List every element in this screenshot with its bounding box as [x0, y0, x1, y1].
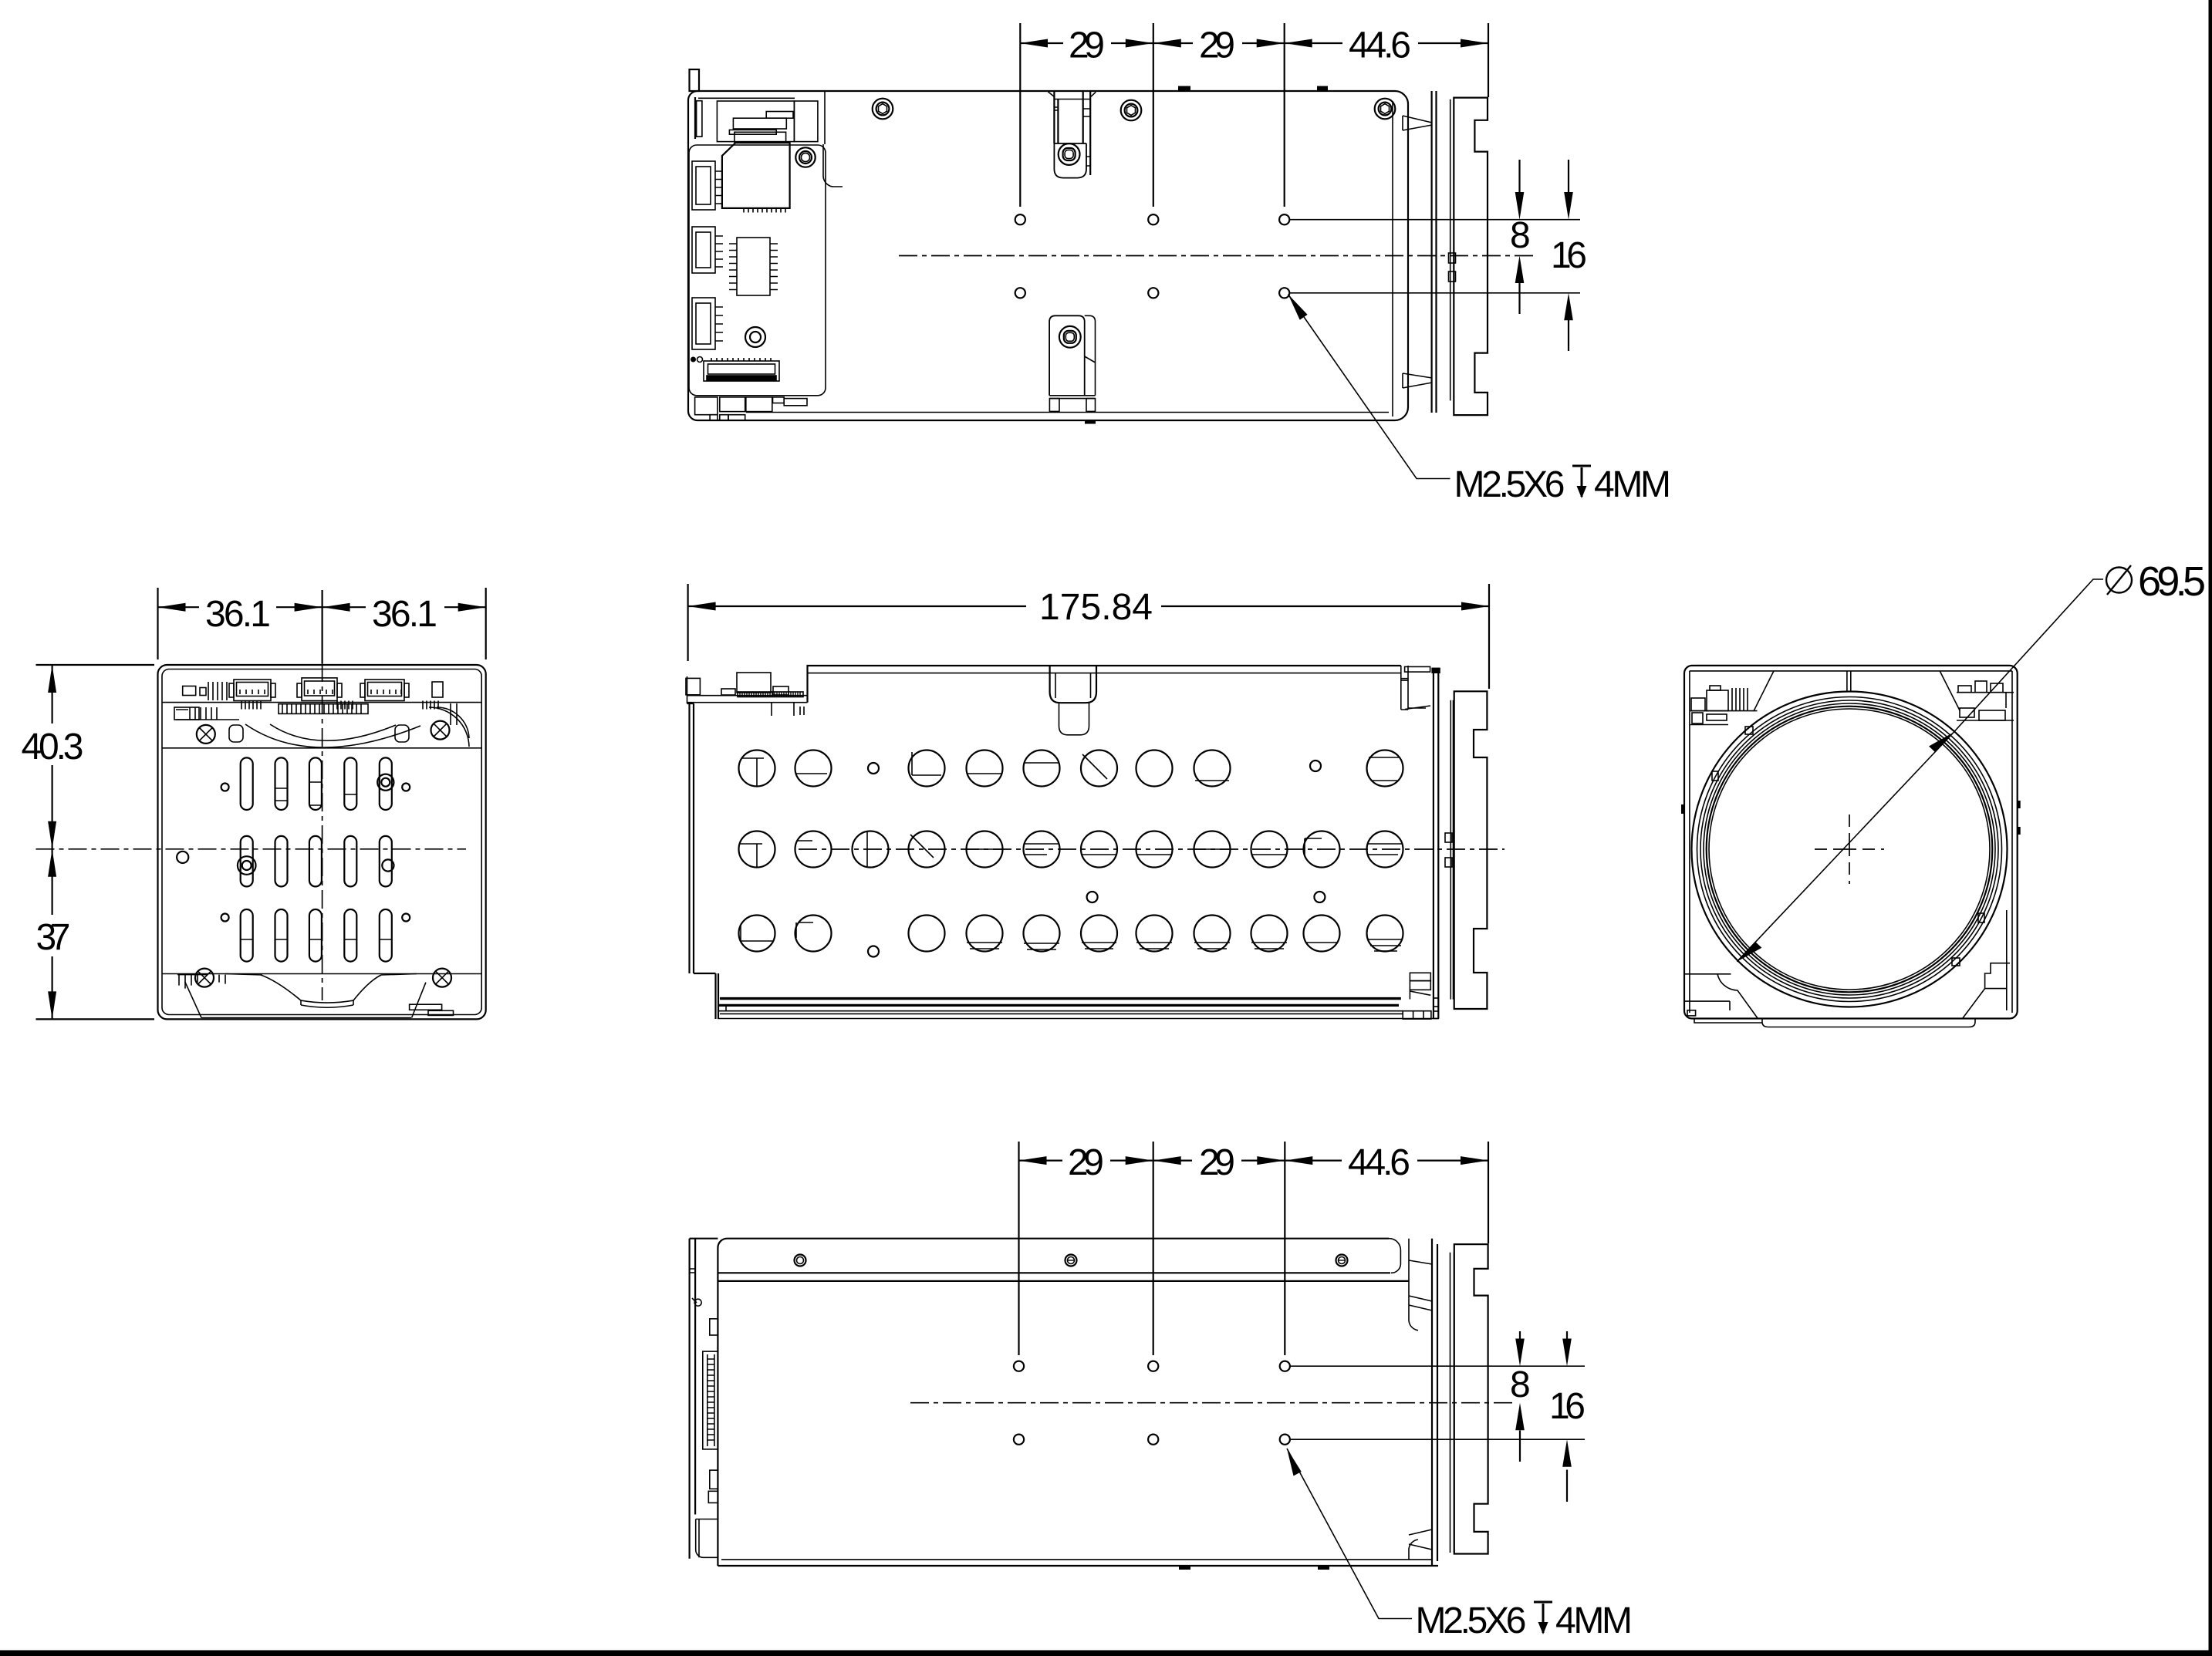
- svg-text:29: 29: [1199, 1142, 1235, 1183]
- svg-text:8: 8: [1510, 1364, 1531, 1405]
- svg-text:29: 29: [1068, 1142, 1104, 1183]
- svg-text:29: 29: [1069, 25, 1105, 66]
- svg-text:44.6: 44.6: [1349, 25, 1411, 66]
- svg-text:16: 16: [1549, 1386, 1586, 1427]
- svg-text:M2.5X6: M2.5X6: [1416, 1600, 1527, 1641]
- svg-text:16: 16: [1551, 235, 1587, 276]
- svg-text:40.3: 40.3: [22, 727, 84, 767]
- svg-text:M2.5X6: M2.5X6: [1454, 464, 1565, 505]
- svg-text:8: 8: [1510, 215, 1531, 256]
- svg-text:29: 29: [1199, 25, 1235, 66]
- svg-text:69.5: 69.5: [2138, 558, 2206, 605]
- svg-text:36.1: 36.1: [372, 594, 437, 635]
- svg-text:36.1: 36.1: [205, 594, 271, 635]
- svg-text:175.84: 175.84: [1039, 587, 1153, 628]
- svg-text:37: 37: [36, 917, 71, 958]
- svg-text:4MM: 4MM: [1594, 464, 1671, 505]
- svg-text:44.6: 44.6: [1348, 1142, 1410, 1183]
- svg-text:4MM: 4MM: [1555, 1600, 1633, 1641]
